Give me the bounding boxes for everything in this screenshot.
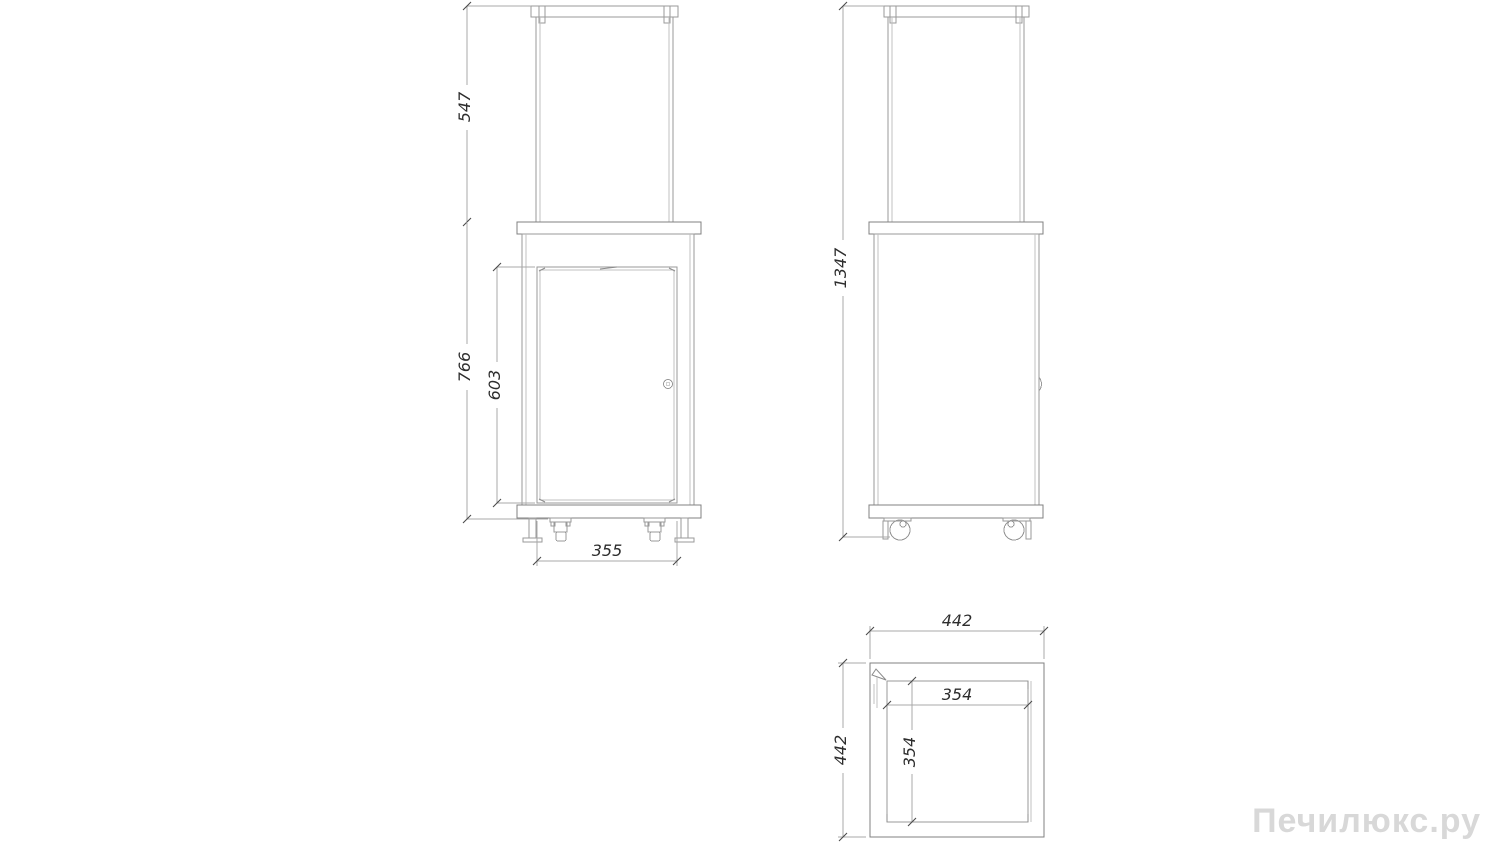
side-cap-pin-right — [1016, 6, 1022, 23]
top-dim-outer-depth: 442 — [831, 659, 866, 841]
front-top-plate — [517, 222, 701, 234]
front-door-corner-mark-tr — [669, 268, 675, 271]
front-view: 547 766 603 355 — [455, 2, 701, 566]
dim-label-354-width: 354 — [942, 685, 973, 704]
front-body-outline — [522, 234, 694, 505]
front-glass-cap — [531, 6, 678, 17]
dim-label-355: 355 — [592, 541, 623, 560]
side-base-plate — [869, 505, 1043, 518]
side-top-plate — [869, 222, 1043, 234]
side-caster-right — [1003, 518, 1031, 540]
side-body-outline — [874, 234, 1039, 505]
front-door-corner-mark-br — [669, 499, 675, 502]
dim-label-354-depth: 354 — [900, 737, 919, 768]
front-door-corner-mark-tl — [539, 268, 545, 271]
front-door-lock-keyhole — [666, 382, 670, 386]
front-dim-glass-width: 355 — [533, 521, 681, 566]
side-view: 1347 — [831, 2, 1043, 541]
dim-label-442-depth: 442 — [831, 735, 850, 766]
top-dim-outer-width: 442 — [866, 611, 1048, 659]
top-leader-annotation — [872, 669, 886, 708]
front-door-corner-mark-bl — [539, 499, 545, 502]
dim-label-547: 547 — [455, 91, 474, 122]
side-glass-cap — [884, 6, 1029, 17]
side-dim-overall-height: 1347 — [831, 2, 890, 541]
front-dim-glass-height: 547 — [455, 2, 531, 226]
dim-label-603: 603 — [485, 370, 504, 401]
front-door-lock — [664, 380, 673, 389]
top-dim-inner-width: 354 — [883, 685, 1032, 709]
side-cap-pin-left — [890, 6, 896, 23]
front-caster-right — [644, 518, 665, 541]
technical-drawing: 547 766 603 355 — [0, 0, 1500, 844]
front-foot-right — [675, 518, 694, 542]
front-dim-door-height: 603 — [485, 263, 535, 507]
front-base-plate — [517, 505, 701, 518]
watermark-text: Печилюкс.ру — [1252, 802, 1481, 840]
drawing-canvas: 547 766 603 355 — [0, 0, 1500, 844]
front-door-outline — [537, 267, 677, 503]
front-door-inner-line — [540, 270, 674, 500]
dim-label-1347: 1347 — [831, 247, 850, 289]
dim-label-766: 766 — [455, 352, 474, 383]
front-caster-left — [550, 518, 571, 541]
dim-label-442-width: 442 — [942, 611, 973, 630]
top-view: 442 442 354 354 — [831, 611, 1048, 841]
top-dim-inner-depth: 354 — [900, 677, 919, 826]
front-foot-left — [523, 518, 542, 542]
